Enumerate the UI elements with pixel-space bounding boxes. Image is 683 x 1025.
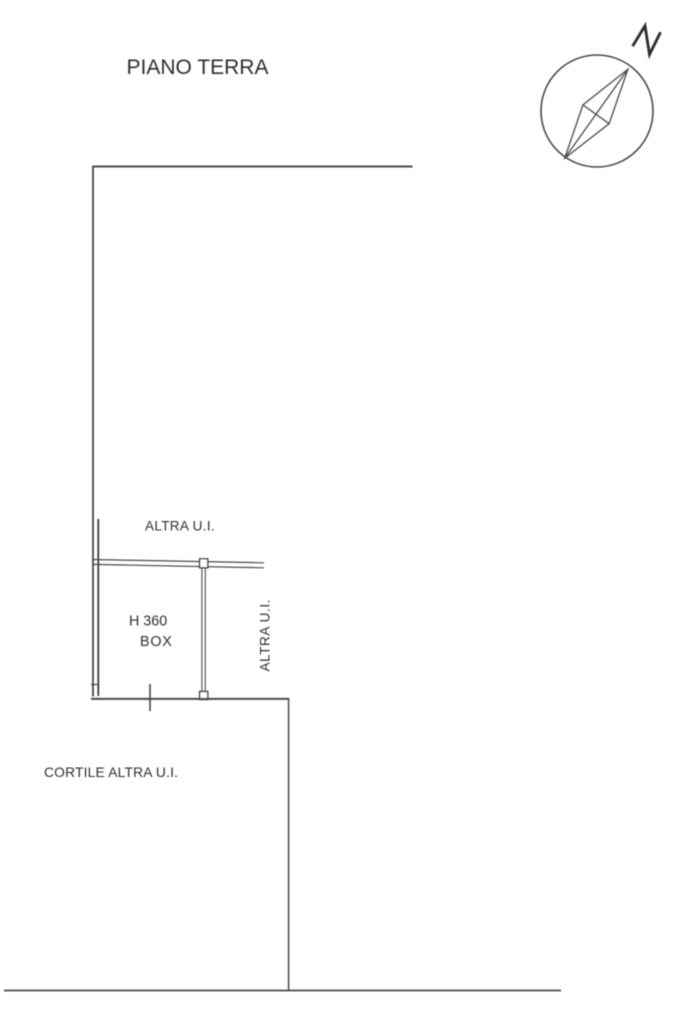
svg-text:PIANO TERRA: PIANO TERRA [127,56,269,79]
svg-text:ALTRA U.I.: ALTRA U.I. [258,599,273,672]
svg-text:H 360: H 360 [129,613,167,629]
svg-text:CORTILE ALTRA U.I.: CORTILE ALTRA U.I. [44,765,178,780]
svg-text:ALTRA U.I.: ALTRA U.I. [145,519,215,534]
svg-text:BOX: BOX [140,634,173,650]
